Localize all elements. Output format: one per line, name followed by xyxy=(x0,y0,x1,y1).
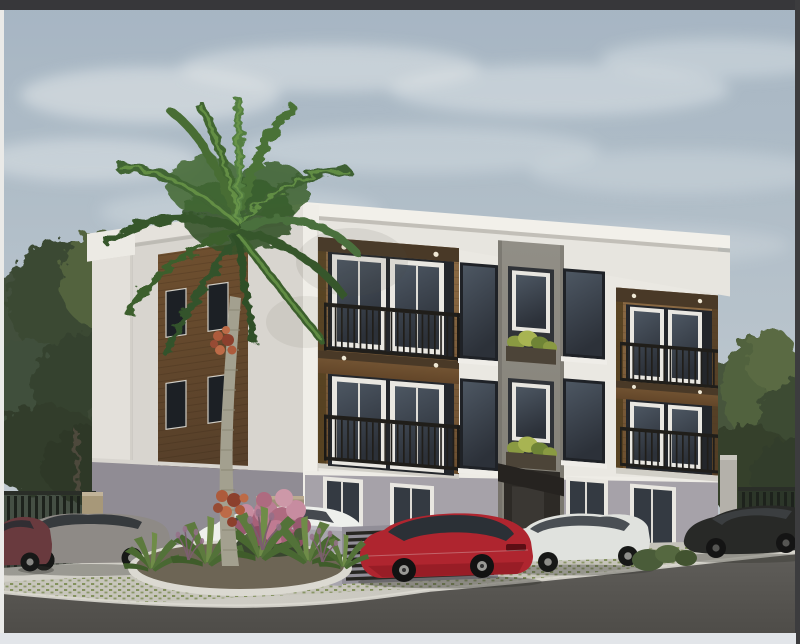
balcony-module-right xyxy=(616,287,718,481)
rendering-image xyxy=(0,0,800,644)
balcony-railing xyxy=(620,427,718,474)
frame-top-bar xyxy=(0,0,800,10)
frame-bottom-strip xyxy=(0,633,796,644)
balcony-railing xyxy=(620,342,718,389)
car-maroon xyxy=(0,517,54,576)
frame-left-strip xyxy=(0,10,4,633)
frame-right-strip xyxy=(795,0,800,644)
